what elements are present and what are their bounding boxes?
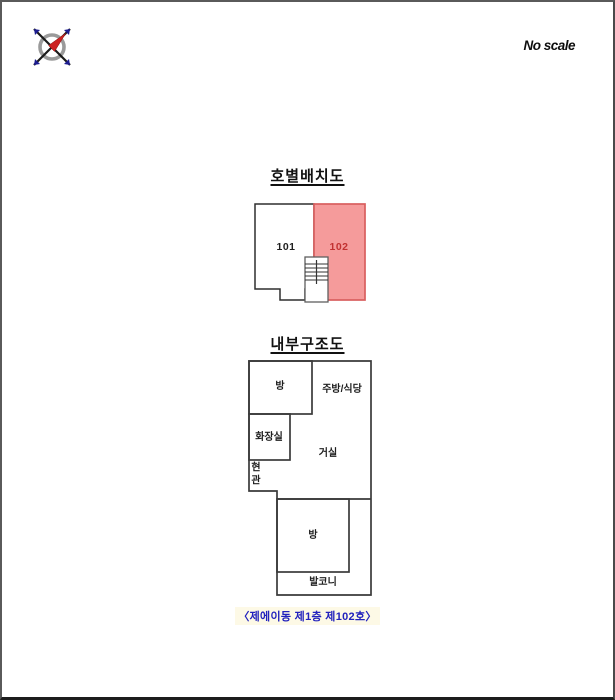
internal-structure-title: 내부구조도 xyxy=(2,333,613,354)
no-scale-note: No scale xyxy=(523,38,575,53)
unit-102-label: 102 xyxy=(329,242,348,253)
entrance-label: 현관 xyxy=(250,463,262,488)
unit-layout-title-text: 호별배치도 xyxy=(270,168,344,185)
floorplan-document-page: No scale 호별배치도 101 102 내부구조도 xyxy=(0,0,615,700)
apartment-outline xyxy=(249,361,371,595)
balcony-label: 발코니 xyxy=(309,578,337,588)
internal-structure-plan: 방 주방/식당 화장실 거실 현관 방 발코니 xyxy=(242,354,378,602)
unit-101-label: 101 xyxy=(276,242,295,253)
unit-layout-drawing xyxy=(247,197,377,309)
room-bottom-label: 방 xyxy=(308,531,317,541)
living-room-label: 거실 xyxy=(319,449,337,459)
unit-layout-title: 호별배치도 xyxy=(2,165,613,186)
unit-caption: 〈제에이동 제1층 제102호〉 xyxy=(235,607,379,625)
internal-structure-title-text: 내부구조도 xyxy=(270,336,344,353)
kitchen-dining-label: 주방/식당 xyxy=(322,385,362,395)
stairwell xyxy=(305,257,328,302)
caption-row: 〈제에이동 제1층 제102호〉 xyxy=(2,607,613,625)
unit-layout-plan: 101 102 xyxy=(247,197,377,309)
room-top-label: 방 xyxy=(275,382,284,392)
compass-rose-icon xyxy=(22,14,82,76)
bathroom-label: 화장실 xyxy=(255,433,283,443)
